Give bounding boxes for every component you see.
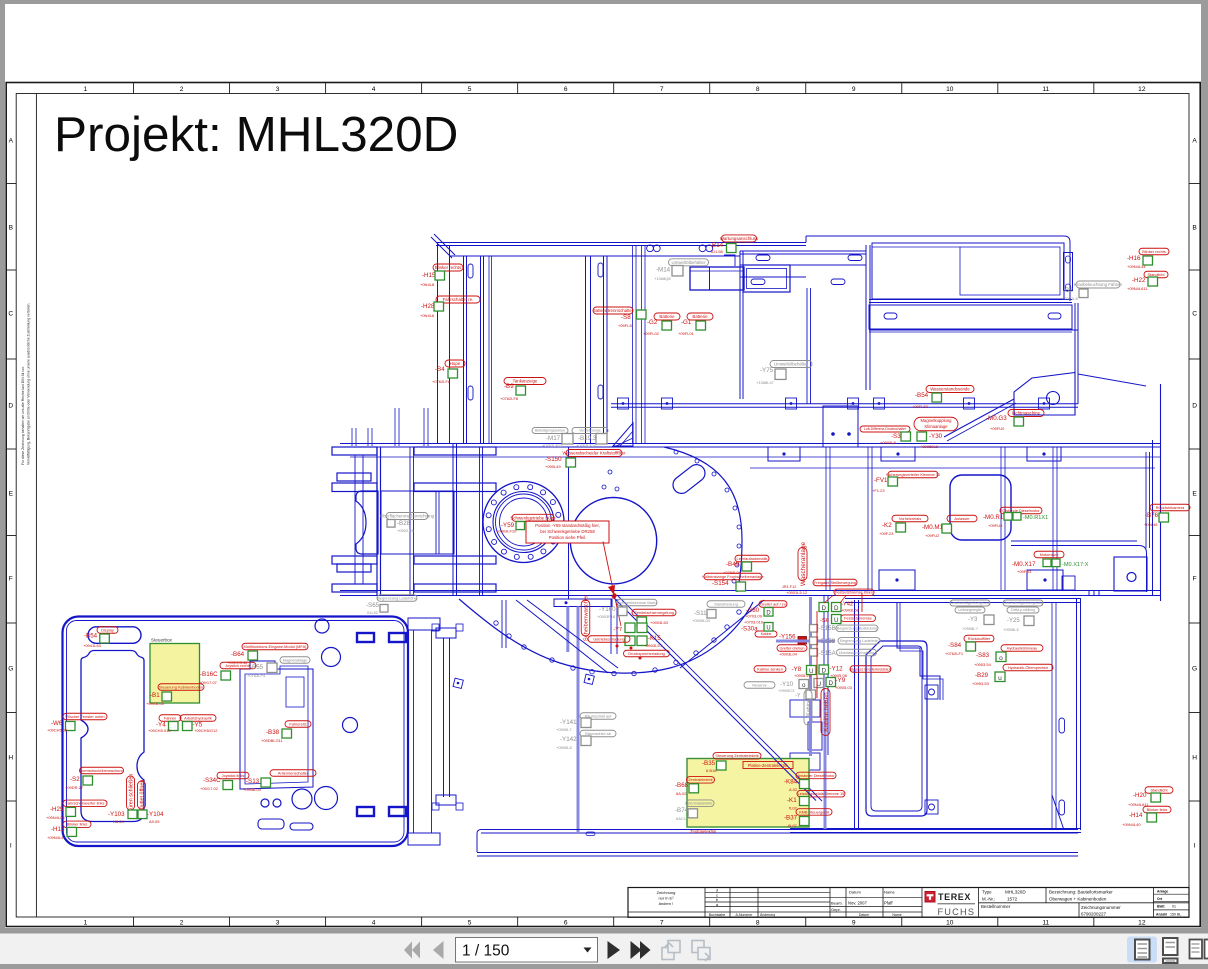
svg-text:-Y10: -Y10: [780, 681, 794, 688]
svg-text:+F1.23: +F1.23: [872, 488, 885, 493]
svg-text:-M0.X17: -M0.X17: [1012, 561, 1036, 568]
svg-text:+0905C3: +0905C3: [778, 688, 795, 693]
svg-text:-S154: -S154: [712, 580, 729, 587]
svg-text:-H16: -H16: [1127, 255, 1141, 262]
svg-text:2: 2: [180, 920, 184, 927]
svg-text:01: 01: [1172, 905, 1176, 909]
svg-text:6L07: 6L07: [788, 823, 798, 828]
svg-text:Bremsdrucküberwachung: Bremsdrucküberwachung: [79, 768, 123, 773]
svg-text:Oberwagen + Kabinenboden: Oberwagen + Kabinenboden: [1049, 897, 1107, 902]
svg-text:4: 4: [372, 86, 376, 93]
svg-text:+09FL02: +09FL02: [643, 331, 660, 336]
svg-text:+0901L8: +0901L8: [1062, 296, 1078, 301]
svg-text:+09CH5.010: +09CH5.010: [148, 728, 171, 733]
svg-text:Wasserabscheider Kraftstofffil: Wasserabscheider Kraftstofffilter: [562, 451, 626, 456]
svg-text:-B38: -B38: [266, 729, 280, 736]
svg-text:JR1.F12: JR1.F12: [782, 585, 796, 589]
svg-text:11: 11: [1042, 86, 1049, 93]
svg-text:Geschwindigkeitsregelung: Geschwindigkeitsregelung: [1003, 601, 1043, 605]
svg-text:Sicherungsverteiler Klemme 30: Sicherungsverteiler Klemme 30: [886, 472, 941, 477]
svg-text:Türen schließen: Türen schließen: [128, 774, 134, 813]
svg-text:11: 11: [1042, 920, 1049, 927]
svg-text:+0908L04: +0908L04: [243, 787, 262, 792]
svg-text:A.02: A.02: [789, 787, 798, 792]
svg-text:Multifunktions-Eingabe-Modul (: Multifunktions-Eingabe-Modul (MFA): [244, 644, 308, 649]
svg-text:-Y75: -Y75: [760, 367, 774, 374]
svg-text:Kabine senken: Kabine senken: [757, 666, 783, 671]
svg-text:Hupe: Hupe: [450, 361, 461, 366]
svg-text:5: 5: [468, 920, 472, 927]
svg-text:Wischer Fenster unten: Wischer Fenster unten: [65, 714, 104, 719]
svg-text:-B49: -B49: [726, 561, 740, 568]
svg-text:-S30a: -S30a: [741, 626, 758, 633]
svg-text:Blinker links: Blinker links: [1147, 807, 1168, 812]
svg-text:Scheibenwascher: Scheibenwascher: [584, 595, 590, 642]
svg-text:F: F: [9, 575, 13, 582]
svg-text:12: 12: [1138, 920, 1146, 927]
svg-text:Tankanzeige: Tankanzeige: [513, 379, 538, 384]
svg-text:+0901L5.12: +0901L5.12: [786, 590, 808, 595]
svg-text:H: H: [8, 754, 13, 761]
svg-text:-B29: -B29: [975, 672, 989, 679]
svg-text:-M0.G3: -M0.G3: [986, 415, 1007, 422]
svg-text:6AC1: 6AC1: [676, 816, 687, 821]
svg-text:Schwenkbremse lösen: Schwenkbremse lösen: [617, 600, 656, 605]
svg-text:-Y: -Y: [795, 693, 801, 699]
svg-text:+09F.23: +09F.23: [879, 531, 894, 536]
svg-text:7: 7: [660, 86, 664, 93]
svg-text:1: 1: [84, 920, 88, 927]
svg-text:+0762LF8: +0762LF8: [432, 379, 451, 384]
svg-text:-B16C: -B16C: [200, 671, 218, 678]
svg-text:+0703.09: +0703.09: [745, 614, 763, 619]
svg-text:-H15: -H15: [422, 272, 436, 279]
svg-text:Vervielfältigung, Bekanntgabe: Vervielfältigung, Bekanntgabe an Dritte …: [27, 303, 31, 465]
svg-text:+0905.03: +0905.03: [835, 685, 853, 690]
svg-text:Nov. 2007: Nov. 2007: [848, 901, 867, 906]
svg-text:-B54: -B54: [915, 392, 929, 399]
svg-text:1: 1: [84, 86, 88, 93]
svg-text:-W6: -W6: [51, 720, 63, 727]
svg-text:Datum: Datum: [849, 890, 861, 895]
svg-text:-B2: -B2: [1063, 287, 1073, 294]
svg-text:-B4: -B4: [435, 366, 445, 373]
svg-text:Standlicht: Standlicht: [1150, 787, 1168, 792]
svg-text:+0902.05: +0902.05: [397, 528, 415, 533]
svg-text:Fahrersitz: Fahrersitz: [289, 721, 306, 726]
svg-text:Blinker rechts: Blinker rechts: [435, 265, 462, 270]
svg-text:E: E: [1192, 490, 1197, 497]
svg-text:+09FU0: +09FU0: [990, 426, 1005, 431]
svg-text:+09FU2: +09FU2: [925, 533, 940, 538]
svg-text:Änderung: Änderung: [760, 913, 775, 917]
svg-text:Bypass Greiferkreislauf: Bypass Greiferkreislauf: [850, 666, 891, 671]
svg-text:-K2: -K2: [882, 522, 892, 529]
svg-text:Bezeichnung: Bauteilortsmarke: Bezeichnung: Bauteilortsmarker: [1049, 889, 1113, 894]
svg-text:nur in E²: nur in E²: [658, 896, 674, 901]
svg-text:-S13: -S13: [246, 778, 260, 785]
svg-text:-M0.X17:X: -M0.X17:X: [1062, 562, 1089, 568]
svg-text:6: 6: [564, 920, 568, 927]
svg-text:+0762LF13: +0762LF13: [542, 443, 563, 448]
svg-text:-Y25: -Y25: [1007, 618, 1020, 624]
svg-text:I: I: [10, 842, 12, 849]
svg-text:Kabine heben: Kabine heben: [823, 692, 830, 732]
svg-text:Position -Y59 standardmäßig hi: Position -Y59 standardmäßig hier,: [535, 523, 600, 528]
svg-text:Greifer drehen: Greifer drehen: [779, 645, 804, 650]
svg-text:1 / 150: 1 / 150: [462, 942, 510, 959]
svg-text:Blatt: Blatt: [1157, 905, 1165, 909]
svg-text:-K1: -K1: [787, 797, 797, 804]
svg-text:-H28: -H28: [421, 303, 435, 310]
svg-text:Pfaff: Pfaff: [884, 901, 893, 906]
svg-text:Festsetzbremse lösen: Festsetzbremse lösen: [835, 590, 873, 595]
svg-text:Anlasser: Anlasser: [954, 516, 970, 521]
svg-text:-G1: -G1: [681, 319, 692, 326]
svg-text:2: 2: [180, 86, 184, 93]
svg-text:5: 5: [468, 86, 472, 93]
svg-text:Platine-Zentralelektrik: Platine-Zentralelektrik: [748, 763, 789, 768]
svg-text:+09L48: +09L48: [1144, 522, 1158, 527]
svg-text:-B28: -B28: [397, 520, 411, 527]
svg-text:D: D: [766, 611, 770, 617]
svg-text:-Y141: -Y141: [560, 719, 577, 726]
svg-text:+0903L04: +0903L04: [779, 652, 798, 657]
svg-text:Zeichnung: Zeichnung: [657, 890, 676, 895]
svg-text:-Y3: -Y3: [968, 617, 978, 623]
svg-text:-K84: -K84: [784, 779, 798, 786]
svg-text:Leistungsrelais Klemme 15: Leistungsrelais Klemme 15: [798, 791, 845, 796]
svg-text:+09DR.27: +09DR.27: [65, 785, 84, 790]
svg-text:+0908L?: +0908L?: [962, 626, 978, 631]
svg-text:-Y156: -Y156: [779, 634, 796, 641]
svg-text:150 BL: 150 BL: [1170, 912, 1181, 916]
svg-text:Reserve: Reserve: [752, 682, 767, 687]
svg-text:MHL320D: MHL320D: [1005, 889, 1026, 894]
svg-text:-S158: -S158: [819, 638, 836, 645]
svg-text:Wartungsanschluss: Wartungsanschluss: [720, 236, 759, 241]
svg-text:Luft-Differenz-Druckschalter: Luft-Differenz-Druckschalter: [864, 427, 907, 431]
svg-text:01L52: 01L52: [367, 610, 379, 615]
svg-text:C: C: [8, 310, 13, 317]
svg-text:-B64: -B64: [231, 651, 245, 658]
svg-text:E: E: [9, 490, 14, 497]
svg-text:+09CH5/G12: +09CH5/G12: [194, 728, 218, 733]
svg-text:+09FL01: +09FL01: [678, 331, 695, 336]
svg-text:Anlasser Dieselmotor: Anlasser Dieselmotor: [798, 773, 836, 778]
svg-text:Hydraulik-Öltemperatur: Hydraulik-Öltemperatur: [1008, 665, 1049, 670]
svg-text:Antennenschalter: Antennenschalter: [278, 770, 309, 775]
svg-text:-Y12: -Y12: [830, 666, 844, 673]
svg-text:+09DBLG11: +09DBLG11: [261, 738, 284, 743]
svg-text:-S3: -S3: [891, 433, 901, 440]
svg-text:G: G: [1192, 665, 1197, 672]
svg-text:Umweltölbehälter: Umweltölbehälter: [672, 260, 706, 265]
svg-text:FUCHS: FUCHS: [938, 907, 976, 917]
svg-text:Magnetablage: Magnetablage: [283, 657, 308, 662]
svg-text:+0903L53: +0903L53: [650, 620, 669, 625]
svg-text:+0905L8: +0905L8: [880, 440, 896, 445]
svg-text:M.-Nr.:: M.-Nr.:: [982, 896, 995, 901]
svg-text:+1368Q8: +1368Q8: [654, 276, 671, 281]
svg-text:-B76: -B76: [1145, 512, 1159, 519]
svg-text:-Y9: -Y9: [836, 677, 846, 684]
svg-text:Rücklauffilter: Rücklauffilter: [968, 636, 991, 641]
svg-text:4: 4: [372, 920, 376, 927]
svg-text:-Y30: -Y30: [929, 433, 943, 440]
svg-text:F: F: [1193, 575, 1197, 582]
svg-text:Zeichnungsnummer: Zeichnungsnummer: [1081, 905, 1121, 910]
svg-text:+0762LF1: +0762LF1: [945, 651, 964, 656]
svg-text:+0762LF8: +0762LF8: [500, 396, 519, 401]
svg-text:Type: Type: [982, 889, 992, 894]
svg-text:-B9: -B9: [504, 383, 514, 390]
svg-text:+09N4L05: +09N4L05: [46, 815, 65, 820]
svg-text:Fahrscheinwerfer links: Fahrscheinwerfer links: [66, 801, 105, 806]
svg-text:Kranbeleuchtung Fahren: Kranbeleuchtung Fahren: [1074, 282, 1123, 287]
svg-text:+0905L8: +0905L8: [556, 745, 572, 750]
svg-text:Räumschild ab: Räumschild ab: [585, 731, 611, 736]
svg-text:D: D: [821, 667, 826, 674]
svg-text:-B37: -B37: [784, 815, 798, 822]
svg-text:9: 9: [852, 920, 856, 927]
svg-text:Name: Name: [892, 913, 901, 917]
svg-text:D: D: [821, 605, 826, 612]
svg-text:Blinker links: Blinker links: [67, 822, 88, 827]
svg-text:7: 7: [660, 920, 664, 927]
svg-text:D: D: [1192, 402, 1197, 409]
svg-text:-Y104: -Y104: [147, 811, 164, 818]
svg-text:+0N4L8: +0N4L8: [420, 282, 435, 287]
svg-text:Steuerung Zentralelektrik: Steuerung Zentralelektrik: [715, 753, 759, 758]
svg-text:+09/17.02: +09/17.02: [200, 786, 219, 791]
svg-text:6A.02: 6A.02: [676, 791, 687, 796]
svg-text:+0953.54: +0953.54: [974, 662, 992, 667]
svg-text:A9.05: A9.05: [149, 819, 160, 824]
svg-text:Wascheranlage: Wascheranlage: [800, 541, 807, 586]
svg-text:-S84: -S84: [948, 642, 962, 649]
svg-text:Geschwindigkeitsregelung: Geschwindigkeitsregelung: [950, 601, 990, 605]
svg-text:Delta-p-stellung: Delta-p-stellung: [1011, 608, 1035, 612]
svg-text:Freigabe Stellbewegung: Freigabe Stellbewegung: [814, 580, 856, 585]
svg-text:Magnetkupplung: Magnetkupplung: [921, 418, 953, 423]
svg-text:A: A: [1192, 137, 1197, 144]
svg-text:Kolbenstange Frontscheibenanla: Kolbenstange Frontscheibenanlage: [702, 574, 763, 579]
svg-text:-H25: -H25: [50, 806, 64, 813]
svg-text:Festsetzbremse: Festsetzbremse: [844, 616, 872, 621]
svg-text:Wasserstandssonde: Wasserstandssonde: [930, 387, 970, 392]
svg-text:D: D: [834, 605, 839, 612]
svg-text:Gepr.: Gepr.: [831, 907, 841, 912]
svg-text:Lichtmaschine: Lichtmaschine: [1012, 411, 1041, 416]
svg-text:Kabine: Kabine: [761, 632, 772, 636]
svg-text:-S34C: -S34C: [203, 777, 221, 784]
svg-text:+09N4L611: +09N4L611: [1127, 286, 1148, 291]
svg-text:Blinker rechts: Blinker rechts: [1142, 249, 1166, 254]
svg-text:o: o: [999, 655, 1003, 662]
svg-text:6790200227: 6790200227: [1081, 912, 1107, 917]
svg-text:-Y7: -Y7: [613, 627, 622, 633]
svg-text:Name: Name: [884, 890, 895, 895]
svg-text:Bearb.: Bearb.: [831, 901, 843, 906]
svg-text:H6.04: H6.04: [113, 819, 124, 824]
svg-text:-S83: -S83: [976, 652, 990, 659]
svg-text:Druckspeicherladung: Druckspeicherladung: [628, 651, 665, 656]
svg-text:3: 3: [276, 86, 280, 93]
svg-text:Projekt: MHL320D: Projekt: MHL320D: [54, 107, 458, 162]
svg-text:C: C: [1192, 310, 1197, 317]
svg-text:Arbeitshydraulik: Arbeitshydraulik: [184, 715, 212, 720]
svg-text:-S2: -S2: [70, 776, 80, 783]
svg-text:+09N4L40: +09N4L40: [1122, 822, 1141, 827]
svg-text:12: 12: [1138, 86, 1146, 93]
svg-text:Bestellnummer: Bestellnummer: [981, 904, 1011, 909]
svg-text:3: 3: [276, 920, 280, 927]
svg-text:Joystick links: Joystick links: [222, 773, 245, 778]
svg-text:Ort: Ort: [1157, 897, 1163, 901]
svg-text:Outlet öffnen: Outlet öffnen: [139, 780, 145, 811]
svg-text:Zentralelektrik: Zentralelektrik: [688, 777, 712, 782]
svg-text:-M0.M1: -M0.M1: [922, 524, 944, 531]
svg-text:Standheizung: Standheizung: [714, 601, 738, 606]
svg-text:Zentralelektrik: Zentralelektrik: [688, 801, 712, 806]
svg-text:9: 9: [852, 86, 856, 93]
svg-text:-S8: -S8: [621, 314, 631, 321]
svg-text:+0905L7: +0905L7: [556, 727, 572, 732]
svg-text:+0903L5.1: +0903L5.1: [644, 643, 664, 648]
svg-text:Begrenzung Ladelinie: Begrenzung Ladelinie: [840, 638, 878, 643]
svg-text:Anzahl: Anzahl: [1156, 912, 1167, 916]
svg-text:-B55: -B55: [250, 664, 264, 671]
svg-text:-H20: -H20: [1133, 792, 1147, 799]
svg-text:+0903L05: +0903L05: [146, 701, 165, 706]
svg-text:-Y160: -Y160: [599, 606, 616, 613]
svg-text:Vorheizrelais: Vorheizrelais: [899, 516, 921, 521]
svg-text:Leistungsregler: Leistungsregler: [958, 608, 982, 612]
svg-text:+09FL8: +09FL8: [618, 323, 632, 328]
svg-text:-M14: -M14: [656, 267, 671, 274]
svg-text:-Y142: -Y142: [560, 736, 577, 743]
svg-text:Leerlaufautomatik: Leerlaufautomatik: [737, 556, 768, 561]
svg-text:+09N4L44: +09N4L44: [1127, 264, 1146, 269]
svg-text:Oberflächenmeßeinrichtung: Oberflächenmeßeinrichtung: [380, 514, 435, 519]
svg-text:Batterie: Batterie: [692, 314, 708, 319]
svg-text:Standlicht: Standlicht: [1147, 272, 1165, 277]
svg-text:o: o: [802, 682, 806, 689]
svg-text:D: D: [8, 402, 13, 409]
svg-text:+09FU6: +09FU6: [988, 523, 1003, 528]
svg-text:Überlastabschaltung: Überlastabschaltung: [839, 650, 874, 655]
svg-text:-B14: -B14: [710, 242, 724, 249]
svg-text:Position siehe Pfeil.: Position siehe Pfeil.: [549, 535, 587, 540]
svg-text:-S6: -S6: [820, 618, 829, 624]
svg-text:Batterietrennschalter: Batterietrennschalter: [593, 308, 634, 313]
svg-text:U: U: [834, 617, 839, 624]
svg-text:Für diese Zeichnung behalten w: Für diese Zeichnung behalten wir uns all…: [21, 366, 25, 465]
svg-text:10: 10: [946, 920, 954, 927]
svg-text:Begrenzung Ladehöhe: Begrenzung Ladehöhe: [377, 595, 416, 600]
svg-text:Fahrschalter re.: Fahrschalter re.: [443, 297, 474, 302]
svg-text:Klimaanlage: Klimaanlage: [924, 424, 948, 429]
svg-text:6.B16: 6.B16: [706, 768, 717, 773]
svg-text:+0941L63: +0941L63: [83, 643, 102, 648]
svg-text:Verstellpumpe: Verstellpumpe: [579, 429, 601, 433]
svg-text:8: 8: [756, 920, 760, 927]
svg-text:-S150: -S150: [545, 456, 562, 463]
svg-text:H: H: [1192, 754, 1197, 761]
svg-text:Pendelachsenregelung: Pendelachsenregelung: [634, 610, 674, 615]
svg-text:-H14: -H14: [1129, 812, 1143, 819]
svg-text:-B19.3: -B19.3: [578, 435, 597, 442]
svg-text:+090L49: +090L49: [545, 464, 561, 469]
svg-text:-B35: -B35: [702, 760, 716, 767]
svg-text:Rückfahrkamera: Rückfahrkamera: [1156, 505, 1185, 510]
svg-text:Kabine: Kabine: [806, 699, 812, 716]
svg-text:ändern !: ändern !: [659, 901, 674, 906]
svg-text:-H22: -H22: [1132, 277, 1146, 284]
svg-text:+09FU3: +09FU3: [1017, 569, 1032, 574]
svg-text:Fahren: Fahren: [164, 715, 176, 720]
svg-text:+09059L8: +09059L8: [920, 444, 939, 449]
svg-text:B: B: [1192, 224, 1197, 231]
svg-text:+0908L5: +0908L5: [1003, 627, 1019, 632]
svg-text:1572: 1572: [1007, 896, 1018, 901]
svg-text:+0703.010: +0703.010: [744, 620, 764, 625]
svg-text:-B54: -B54: [84, 633, 98, 640]
svg-text:Buchstabe: Buchstabe: [709, 913, 726, 917]
svg-text:Anlage: Anlage: [1157, 889, 1168, 893]
svg-text:-S15A: -S15A: [819, 650, 837, 657]
svg-text:Greifer auf / zu: Greifer auf / zu: [760, 601, 786, 606]
svg-text:8: 8: [756, 86, 760, 93]
svg-text:TEREX: TEREX: [938, 892, 971, 902]
svg-text:+0905L04: +0905L04: [692, 618, 711, 623]
svg-text:KMB Steuergerät: KMB Steuergerät: [799, 809, 830, 814]
svg-text:G: G: [8, 665, 13, 672]
svg-text:-B74: -B74: [675, 807, 689, 814]
svg-text:+0903L58: +0903L58: [841, 608, 860, 613]
svg-text:-B1: -B1: [150, 692, 160, 699]
svg-text:Umweltölbehälter: Umweltölbehälter: [774, 362, 808, 367]
svg-text:+0905.23: +0905.23: [794, 673, 812, 678]
svg-text:Batterie: Batterie: [659, 314, 675, 319]
svg-text:Display: Display: [101, 627, 114, 632]
svg-text:+0903F18: +0903F18: [597, 614, 616, 619]
svg-text:Hydraulikölniveau: Hydraulikölniveau: [1007, 645, 1038, 650]
svg-text:-M0.R1X1: -M0.R1X1: [1023, 515, 1048, 521]
svg-text:D: D: [828, 680, 833, 687]
svg-text:A-Nummer: A-Nummer: [736, 913, 754, 917]
svg-text:Befestigungspumpe: Befestigungspumpe: [535, 429, 565, 433]
svg-text:+09FL53: +09FL53: [912, 404, 929, 409]
svg-text:+0763LF4: +0763LF4: [247, 673, 266, 678]
svg-text:-K15: -K15: [648, 636, 661, 642]
svg-text:Schwenkgetriebe Büge: Schwenkgetriebe Büge: [510, 515, 556, 520]
svg-text:+0953.53: +0953.53: [972, 681, 990, 686]
svg-text:-Y103: -Y103: [108, 811, 125, 818]
svg-text:-H13: -H13: [51, 826, 65, 833]
svg-text:I: I: [1194, 842, 1196, 849]
svg-text:Zentralelektrik: Zentralelektrik: [690, 829, 717, 834]
svg-text:-Y8: -Y8: [792, 666, 802, 673]
svg-text:-S65: -S65: [366, 602, 380, 609]
svg-text:Joystick rechts: Joystick rechts: [225, 663, 251, 668]
svg-text:+0762LF10: +0762LF10: [576, 443, 597, 448]
svg-text:-FV1: -FV1: [874, 477, 888, 484]
svg-text:+0903LF10: +0903LF10: [496, 529, 517, 534]
svg-text:-G2: -G2: [647, 319, 658, 326]
svg-text:+09CH5.02: +09CH5.02: [47, 728, 68, 733]
